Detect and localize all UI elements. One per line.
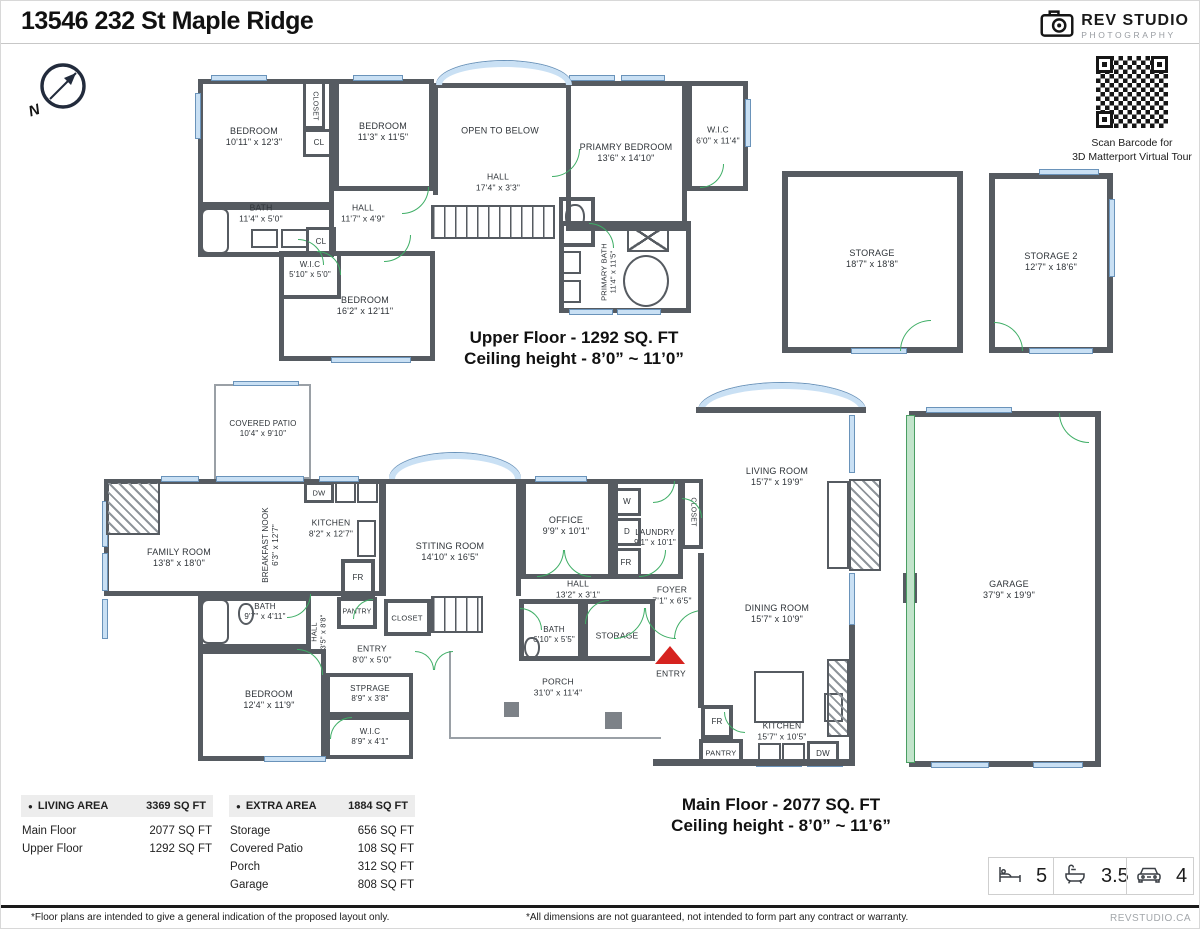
extra-area-table: ●EXTRA AREA 1884 SQ FT Storage656 SQ FTC…	[229, 795, 415, 894]
label-stair-closet: CLOSET	[391, 613, 422, 622]
window	[331, 357, 411, 363]
label-up-bedroom-2: BEDROOM11'3" x 11'5"	[358, 121, 409, 144]
label-stprage: STPRAGE8'9" x 3'8"	[350, 684, 390, 704]
window	[211, 75, 267, 81]
window	[233, 381, 299, 386]
main-floor-caption: Main Floor - 2077 SQ. FT Ceiling height …	[671, 794, 891, 837]
label-porch: PORCH31'0" x 11'4"	[534, 676, 583, 697]
window	[264, 756, 326, 762]
fixture-sq	[335, 482, 356, 503]
fixture-toilet	[565, 204, 585, 231]
fixture-sq	[251, 229, 278, 248]
garage-count: 4	[1126, 857, 1194, 895]
label-garage: GARAGE37'9" x 19'9"	[983, 579, 1035, 602]
window	[1033, 762, 1083, 768]
label-hall-main-vert: HALL3'5" x 8'8"	[310, 615, 329, 650]
label-up-bedroom-1: BEDROOM10'11" x 12'3"	[226, 126, 283, 149]
upper-floor-caption: Upper Floor - 1292 SQ. FT Ceiling height…	[464, 327, 684, 370]
arched-window	[389, 453, 521, 479]
label-kitchen-2: KITCHEN15'7" x 10'5"	[757, 720, 806, 741]
door-arc	[434, 651, 453, 670]
bath-icon	[1063, 863, 1087, 890]
label-kitchen-1: KITCHEN8'2" x 12'7"	[309, 517, 353, 538]
label-entry-marker-label: ENTRY	[656, 669, 686, 680]
label-up-cl-1: CL	[314, 138, 325, 148]
living-area-rows: Main Floor2077 SQ FTUpper Floor1292 SQ F…	[21, 822, 213, 858]
fixture-gdoor	[906, 415, 915, 763]
label-pantry-2: PANTRY	[706, 748, 737, 757]
bed-icon	[998, 864, 1022, 889]
window	[102, 553, 108, 591]
floor-plan-page: 13546 232 St Maple Ridge REV STUDIO PHOT…	[0, 0, 1200, 929]
window	[621, 75, 665, 81]
window	[1039, 169, 1099, 175]
window	[195, 93, 201, 139]
label-up-cl-2: CL	[316, 237, 327, 247]
bathroom-count: 3.5	[1053, 857, 1127, 895]
table-row: Covered Patio108 SQ FT	[229, 840, 415, 858]
table-row: Porch312 SQ FT	[229, 858, 415, 876]
fixture-oval	[623, 255, 669, 307]
window	[161, 476, 199, 482]
extra-area-rows: Storage656 SQ FTCovered Patio108 SQ FTPo…	[229, 822, 415, 894]
label-breakfast-nook: BREAKFAST NOOK6'3" x 12'7"	[261, 507, 281, 583]
car-icon	[1136, 864, 1162, 889]
fixture-island	[754, 671, 804, 723]
label-hall-upper: HALL11'7" x 4'9"	[341, 202, 385, 223]
label-living-room: LIVING ROOM15'7" x 19'9"	[746, 466, 808, 489]
table-row: Garage808 SQ FT	[229, 876, 415, 894]
label-primary-bedroom: PRIAMRY BEDROOM13'6" x 14'10"	[580, 142, 673, 165]
property-stats: 5 3.5 4	[989, 857, 1194, 895]
label-open-to-below: OPEN TO BELOW	[461, 125, 539, 136]
arched-window	[436, 61, 572, 85]
label-storage-2: STORAGE 212'7" x 18'6"	[1024, 251, 1077, 274]
window	[745, 99, 751, 147]
window	[102, 599, 108, 639]
label-main-bedroom: BEDROOM12'4" x 11'9"	[243, 689, 294, 712]
label-up-bedroom-3: BEDROOM16'2" x 12'11"	[337, 295, 394, 318]
room-sitting-room	[381, 479, 521, 596]
fixture-tub	[201, 599, 229, 644]
label-foyer: FOYER7'1" x 6'5"	[652, 584, 691, 605]
label-primary-bath: PRIMARY BATH11'4" x 11'5"	[600, 243, 619, 301]
floor-plan-canvas: BEDROOM10'11" x 12'3"CLOSETCLBEDROOM11'3…	[1, 1, 1200, 929]
fixture-sq	[561, 251, 581, 274]
window	[931, 762, 989, 768]
window	[216, 476, 304, 482]
window	[535, 476, 587, 482]
bedroom-count: 5	[988, 857, 1054, 895]
label-laundry-fr: FR	[620, 558, 631, 568]
extra-area-header: ●EXTRA AREA 1884 SQ FT	[229, 795, 415, 817]
label-hall-main: HALL13'2" x 3'1"	[556, 578, 600, 599]
label-dw-2: DW	[816, 749, 830, 759]
fixture-sqw	[827, 481, 849, 569]
window	[849, 415, 855, 473]
fixture-sq	[357, 482, 378, 503]
fixture-shower	[627, 223, 669, 252]
fixture-toilet	[524, 637, 540, 659]
fixture-post	[605, 712, 622, 729]
fixture-tub	[201, 208, 229, 254]
window	[849, 573, 855, 625]
label-sitting-room: STITING ROOM14'10" x 16'5"	[416, 541, 484, 564]
footer-divider	[1, 905, 1200, 908]
label-family-room: FAMILY ROOM13'8" x 18'0"	[147, 547, 211, 570]
door-arc	[415, 651, 434, 670]
label-storage-1: STORAGE18'7" x 18'8"	[846, 248, 898, 271]
label-entry-hall: ENTRY8'0" x 5'0"	[352, 643, 391, 664]
door-arc	[402, 187, 429, 214]
fixture-stairs	[431, 596, 483, 633]
label-hall-upper-long: HALL17'4" x 3'3"	[476, 171, 520, 192]
table-row: Storage656 SQ FT	[229, 822, 415, 840]
table-row: Main Floor2077 SQ FT	[21, 822, 213, 840]
fixture-sq	[561, 280, 581, 303]
living-area-table: ●LIVING AREA 3369 SQ FT Main Floor2077 S…	[21, 795, 213, 858]
footer-website: REVSTUDIO.CA	[1110, 913, 1191, 924]
window	[1029, 348, 1093, 354]
fixture-stairs	[431, 205, 555, 239]
fixture-hatch	[849, 479, 881, 571]
label-main-wic: W.I.C8'9" x 4'1"	[351, 727, 388, 747]
label-kitchen-fr: FR	[352, 573, 363, 583]
label-up-bath: BATH11'4" x 5'0"	[239, 202, 283, 223]
label-fr-2: FR	[711, 717, 722, 727]
fixture-toilet	[238, 603, 254, 625]
footer-disclaimer-left: *Floor plans are intended to give a gene…	[31, 912, 389, 923]
label-washer: W	[623, 497, 631, 507]
label-up-wic-1: W.I.C6'0" x 11'4"	[696, 124, 740, 145]
fixture-strip	[696, 407, 866, 413]
window	[926, 407, 1012, 413]
fixture-strip	[849, 625, 855, 765]
label-up-closet: CLOSET	[310, 91, 319, 120]
window	[1109, 199, 1115, 277]
window	[851, 348, 907, 354]
fixture-hatch	[827, 659, 849, 737]
fixture-strip	[653, 759, 855, 766]
table-row: Upper Floor1292 SQ FT	[21, 840, 213, 858]
footer-disclaimer-right: *All dimensions are not guaranteed, not …	[526, 912, 908, 923]
window	[353, 75, 403, 81]
fixture-hatch	[106, 481, 160, 535]
fixture-strip	[698, 553, 704, 708]
fixture-sq	[357, 520, 376, 557]
window	[569, 75, 615, 81]
window	[569, 309, 613, 315]
label-dryer: D	[624, 527, 630, 537]
living-area-header: ●LIVING AREA 3369 SQ FT	[21, 795, 213, 817]
fixture-sq	[281, 229, 308, 248]
label-dw-1: DW	[313, 488, 326, 497]
label-dining-room: DINING ROOM15'7" x 10'9"	[745, 603, 809, 626]
window	[617, 309, 661, 315]
label-covered-patio: COVERED PATIO10'4" x 9'10"	[229, 419, 296, 439]
fixture-post	[504, 702, 519, 717]
label-office: OFFICE9'9" x 10'1"	[543, 515, 590, 538]
